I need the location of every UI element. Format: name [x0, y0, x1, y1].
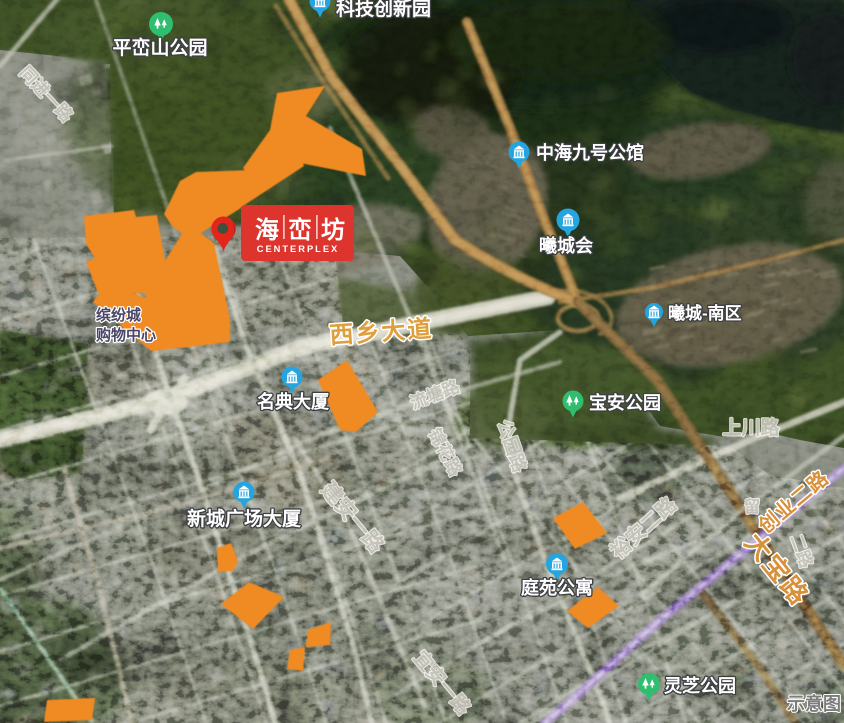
svg-text:建安一路: 建安一路 — [316, 478, 389, 559]
svg-text:CENTERPLEX: CENTERPLEX — [257, 244, 340, 254]
svg-text:锦花路: 锦花路 — [424, 425, 466, 480]
svg-text:西乡大道: 西乡大道 — [329, 314, 435, 349]
svg-text:同进一路: 同进一路 — [16, 62, 78, 126]
svg-text:峦: 峦 — [288, 216, 312, 244]
svg-text:坊: 坊 — [321, 216, 345, 244]
svg-text:庭苑公寓: 庭苑公寓 — [521, 577, 593, 598]
svg-text:宜安一路: 宜安一路 — [409, 646, 476, 720]
svg-text:创业二路: 创业二路 — [753, 465, 834, 538]
svg-text:中海九号公馆: 中海九号公馆 — [536, 142, 644, 163]
svg-text:科技创新园: 科技创新园 — [336, 0, 431, 20]
svg-text:海: 海 — [255, 216, 279, 244]
svg-text:上川路: 上川路 — [722, 416, 780, 439]
svg-text:灵芝公园: 灵芝公园 — [664, 675, 736, 696]
svg-text:平峦山公园: 平峦山公园 — [112, 36, 207, 59]
svg-text:示意图: 示意图 — [787, 693, 841, 714]
svg-text:公园路: 公园路 — [493, 417, 531, 476]
svg-text:裕安二路: 裕安二路 — [606, 491, 682, 563]
svg-text:流塘路: 流塘路 — [407, 376, 463, 413]
svg-text:曦城-南区: 曦城-南区 — [668, 303, 742, 323]
svg-text:缤纷城: 缤纷城 — [96, 306, 141, 324]
svg-text:购物中心: 购物中心 — [96, 326, 156, 344]
svg-text:名典大厦: 名典大厦 — [257, 391, 330, 412]
svg-text:宝安公园: 宝安公园 — [589, 392, 661, 413]
svg-text:新城广场大厦: 新城广场大厦 — [187, 507, 302, 530]
svg-text:留: 留 — [744, 497, 760, 516]
svg-text:曦城会: 曦城会 — [539, 235, 593, 256]
